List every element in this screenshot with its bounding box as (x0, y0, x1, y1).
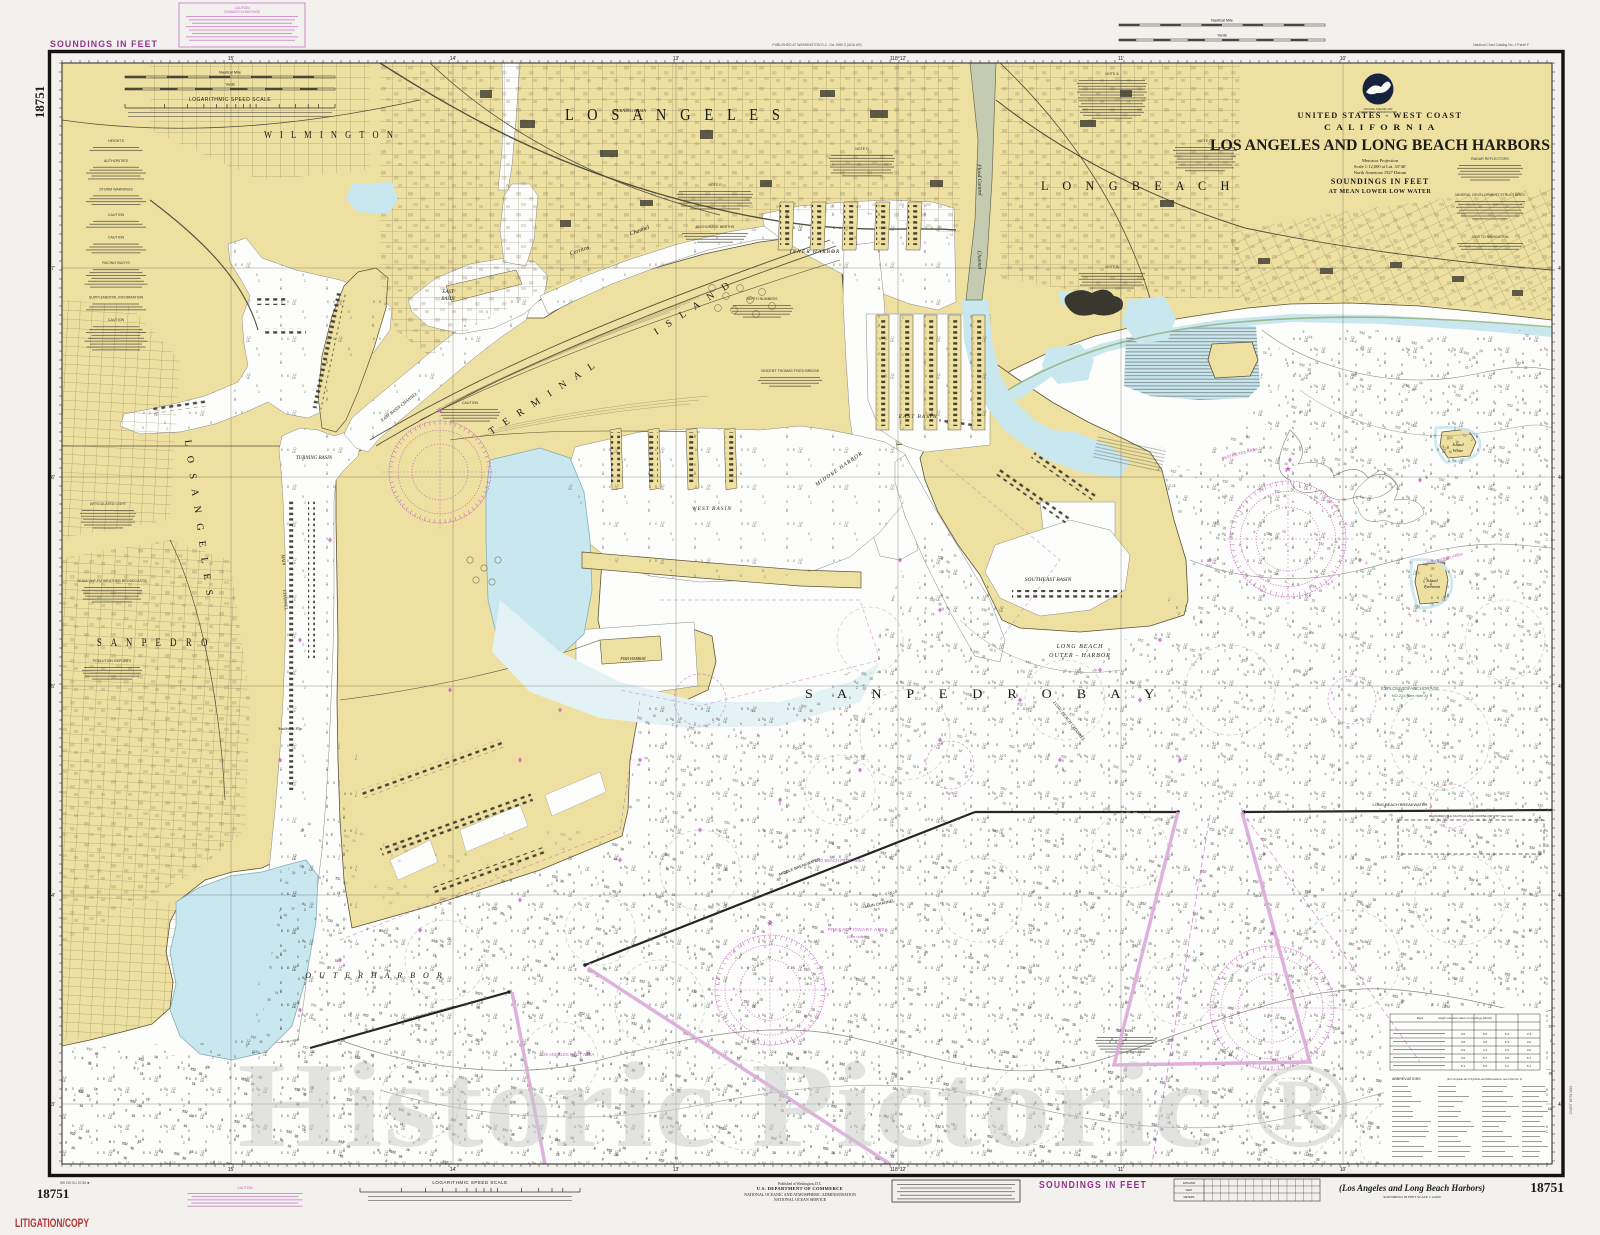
svg-text:METERS: METERS (1184, 1195, 1195, 1199)
svg-text:North American 1927 Datum: North American 1927 Datum (1354, 170, 1407, 175)
svg-text:CAUTION: CAUTION (462, 401, 479, 405)
svg-text:AT MEAN LOWER LOW WATER: AT MEAN LOWER LOW WATER (1329, 189, 1432, 195)
svg-text:MINERAL DEVELOPMENT STRUCTURES: MINERAL DEVELOPMENT STRUCTURES (1455, 193, 1525, 197)
svg-text:BASIN: BASIN (441, 297, 455, 302)
svg-text:RACING BUOYS: RACING BUOYS (102, 261, 130, 265)
svg-text:HEIGHTS: HEIGHTS (108, 139, 125, 143)
svg-text:BERTH NUMBERS: BERTH NUMBERS (746, 297, 778, 301)
svg-text:Yards: Yards (225, 83, 235, 87)
svg-text:4.1: 4.1 (1483, 1048, 1488, 1052)
svg-text:Mercator Projection: Mercator Projection (1362, 158, 1399, 163)
svg-text:SOUTHEAST BASIN: SOUTHEAST BASIN (1025, 577, 1072, 583)
svg-text:18751: 18751 (37, 1186, 70, 1201)
svg-text:LONG BEACH BREAKWATER: LONG BEACH BREAKWATER (1373, 802, 1428, 807)
svg-text:NOAA VHF-FM WEATHER BROADCASTS: NOAA VHF-FM WEATHER BROADCASTS (77, 579, 147, 583)
svg-text:AUTHORITIES: AUTHORITIES (104, 159, 129, 163)
svg-text:11': 11' (1118, 56, 1124, 62)
svg-text:4.6: 4.6 (1461, 1056, 1466, 1060)
svg-text:S A N P E D R O B A Y: S A N P E D R O B A Y (805, 686, 1165, 701)
svg-text:INNER HARBOR: INNER HARBOR (789, 249, 841, 255)
svg-text:EXPLOSIVES ANCHORAGE: EXPLOSIVES ANCHORAGE (1381, 686, 1439, 691)
svg-text:S A N P E D R O: S A N P E D R O (97, 635, 211, 649)
svg-text:EAST BASIN: EAST BASIN (898, 414, 938, 420)
svg-text:CAUTION: CAUTION (108, 236, 125, 240)
svg-text:CAUTION: CAUTION (108, 318, 125, 322)
svg-text:O U T E R H A R B O R: O U T E R H A R B O R (305, 971, 444, 980)
svg-text:FATHOMS: FATHOMS (1183, 1181, 1196, 1185)
svg-text:45': 45' (48, 684, 55, 690)
svg-text:3.8: 3.8 (1483, 1040, 1488, 1044)
svg-text:EAST: EAST (441, 290, 455, 295)
svg-text:3.3: 3.3 (1505, 1048, 1510, 1052)
svg-text:W I L M I N G T O N: W I L M I N G T O N (264, 129, 396, 141)
svg-text:Yards: Yards (1217, 34, 1227, 38)
svg-text:13': 13' (673, 56, 680, 62)
svg-text:4.8: 4.8 (1461, 1040, 1466, 1044)
svg-text:46': 46' (48, 475, 55, 481)
svg-text:CAUTION: CAUTION (237, 1186, 253, 1190)
svg-text:AIDS TO NAVIGATION: AIDS TO NAVIGATION (1472, 235, 1509, 239)
svg-text:(For complete list of Symbols: (For complete list of Symbols and Abbrev… (1447, 1077, 1522, 1081)
svg-text:44': 44' (48, 893, 55, 899)
svg-text:Flood Control: Flood Control (975, 163, 982, 196)
svg-text:SUPPLEMENTAL INFORMATION: SUPPLEMENTAL INFORMATION (89, 296, 144, 300)
svg-text:Southwest Slip: Southwest Slip (278, 726, 301, 731)
svg-text:SOUNDINGS IN FEET: SOUNDINGS IN FEET (1039, 1179, 1147, 1191)
svg-text:L O S A N G E L E S: L O S A N G E L E S (565, 105, 785, 124)
svg-text:5.3: 5.3 (1505, 1040, 1510, 1044)
svg-text:OUTER - HARBOR: OUTER - HARBOR (1049, 653, 1111, 659)
svg-text:ABBREVIATIONS: ABBREVIATIONS (1392, 1077, 1421, 1081)
svg-text:43': 43' (48, 1102, 55, 1108)
svg-text:3.0: 3.0 (1527, 1048, 1532, 1052)
svg-text:5.7: 5.7 (1483, 1056, 1488, 1060)
svg-text:NO.214 (see note A): NO.214 (see note A) (1392, 693, 1429, 698)
svg-text:4.9: 4.9 (1461, 1048, 1466, 1052)
svg-text:SOUNDINGS IN FEET: SOUNDINGS IN FEET (50, 39, 158, 50)
svg-text:5.5: 5.5 (1483, 1064, 1488, 1068)
svg-text:NOTE C: NOTE C (1198, 139, 1212, 143)
svg-text:CAUTION: CAUTION (108, 213, 125, 217)
svg-text:15': 15' (228, 56, 235, 62)
svg-text:5.1: 5.1 (1527, 1064, 1532, 1068)
svg-text:47': 47' (1558, 266, 1565, 272)
svg-text:White: White (1453, 448, 1464, 453)
svg-text:★: ★ (1284, 465, 1291, 474)
svg-text:PUBLISHED AT WASHINGTON D.C.: PUBLISHED AT WASHINGTON D.C. Oct 1985 S … (772, 43, 861, 47)
svg-text:RADAR REFLECTORS: RADAR REFLECTORS (1471, 157, 1509, 161)
svg-text:NOTE B: NOTE B (1105, 265, 1119, 269)
svg-text:10': 10' (1340, 56, 1347, 62)
svg-text:FEET: FEET (1186, 1188, 1193, 1192)
svg-text:(Los Angeles and Long Beach Ha: (Los Angeles and Long Beach Harbors) (1339, 1183, 1485, 1194)
svg-text:15': 15' (228, 1167, 235, 1173)
svg-text:45': 45' (1558, 684, 1565, 690)
svg-text:TURNING BASIN: TURNING BASIN (614, 108, 648, 113)
svg-text:★: ★ (766, 919, 773, 928)
svg-text:Channel: Channel (976, 251, 983, 270)
svg-text:Island: Island (1451, 442, 1464, 447)
svg-text:POLLUTION REPORTS: POLLUTION REPORTS (93, 659, 132, 663)
svg-text:3.5: 3.5 (1505, 1056, 1510, 1060)
svg-text:4.3: 4.3 (1527, 1032, 1532, 1036)
svg-text:3.2: 3.2 (1505, 1064, 1510, 1068)
svg-text:Freeman: Freeman (1423, 584, 1441, 589)
svg-text:WEST BASIN: WEST BASIN (692, 506, 732, 512)
svg-text:C A L I F O R N I A: C A L I F O R N I A (1324, 122, 1436, 132)
svg-text:118°12': 118°12' (890, 56, 907, 62)
svg-text:LOGARITHMIC SPEED SCALE: LOGARITHMIC SPEED SCALE (432, 1180, 507, 1185)
svg-text:5.7: 5.7 (1527, 1056, 1532, 1060)
svg-text:43': 43' (1558, 1102, 1565, 1108)
svg-text:SOUNDINGS IN FEET: SOUNDINGS IN FEET (1331, 177, 1429, 186)
svg-text:U.S. DEPARTMENT OF COMMERCE: U.S. DEPARTMENT OF COMMERCE (757, 1186, 843, 1191)
svg-text:3.0: 3.0 (1527, 1040, 1532, 1044)
svg-text:LONG BEACH: LONG BEACH (1056, 644, 1104, 650)
svg-text:5.6: 5.6 (1483, 1032, 1488, 1036)
svg-text:CAUTION: CAUTION (1117, 1029, 1134, 1033)
svg-text:VINCENT THOMAS FIXED BRIDGE: VINCENT THOMAS FIXED BRIDGE (761, 369, 820, 373)
svg-text:Nautical Mile: Nautical Mile (219, 71, 241, 75)
svg-text:PRECAUTIONARY AREA: PRECAUTIONARY AREA (828, 927, 889, 932)
svg-text:TURNING BASIN: TURNING BASIN (296, 456, 333, 461)
svg-text:18751: 18751 (32, 86, 47, 119)
svg-text:L O N G B E A C H: L O N G B E A C H (1041, 178, 1235, 193)
svg-text:46': 46' (1558, 475, 1565, 481)
svg-text:LITIGATION/COPY: LITIGATION/COPY (15, 1218, 89, 1230)
svg-text:Historic Pictoric ®: Historic Pictoric ® (238, 1038, 1353, 1173)
svg-text:44': 44' (1558, 893, 1565, 899)
svg-text:Nautical Mile: Nautical Mile (1211, 19, 1233, 23)
svg-text:CHART 18751 NOS: CHART 18751 NOS (1569, 1086, 1573, 1114)
svg-text:NOTE E: NOTE E (708, 183, 722, 187)
svg-text:Place: Place (1417, 1016, 1424, 1020)
svg-text:NOTE A: NOTE A (1105, 72, 1119, 76)
svg-text:STORM WARNINGS: STORM WARNINGS (99, 187, 133, 191)
svg-text:47': 47' (48, 266, 55, 272)
svg-text:ARTICULATED LIGHT: ARTICULATED LIGHT (90, 502, 127, 506)
svg-text:Height referred to datum of so: Height referred to datum of soundings (M… (1438, 1016, 1491, 1020)
svg-text:(See note E): (See note E) (847, 934, 870, 939)
svg-text:Island: Island (1425, 578, 1438, 583)
svg-text:FISH HARBOR: FISH HARBOR (619, 656, 646, 661)
svg-text:★: ★ (436, 406, 443, 415)
svg-text:NATIONAL OCEAN SERVICE: NATIONAL OCEAN SERVICE (774, 1197, 827, 1202)
svg-text:UNITED STATES - WEST COAST: UNITED STATES - WEST COAST (1298, 110, 1463, 120)
svg-text:Nautical Chart Catalog No. 2: Nautical Chart Catalog No. 2 Panel F (1473, 43, 1529, 47)
svg-text:LOGARITHMIC SPEED SCALE: LOGARITHMIC SPEED SCALE (189, 97, 272, 103)
svg-text:LOS ANGELES AND LONG BEACH HAR: LOS ANGELES AND LONG BEACH HARBORS (1210, 137, 1550, 154)
svg-text:NOTE D: NOTE D (855, 147, 869, 151)
svg-text:5W DB GU 20 86 ■: 5W DB GU 20 86 ■ (60, 1181, 89, 1185)
svg-text:14': 14' (450, 56, 457, 62)
svg-text:5.1: 5.1 (1461, 1064, 1466, 1068)
svg-text:CHANGES IN BUOYAGE: CHANGES IN BUOYAGE (224, 10, 260, 14)
svg-text:3.6: 3.6 (1461, 1032, 1466, 1036)
svg-text:18751: 18751 (1530, 1180, 1564, 1195)
svg-text:ANCHORAGE BERTHS: ANCHORAGE BERTHS (696, 225, 735, 229)
svg-text:5.4: 5.4 (1505, 1032, 1510, 1036)
